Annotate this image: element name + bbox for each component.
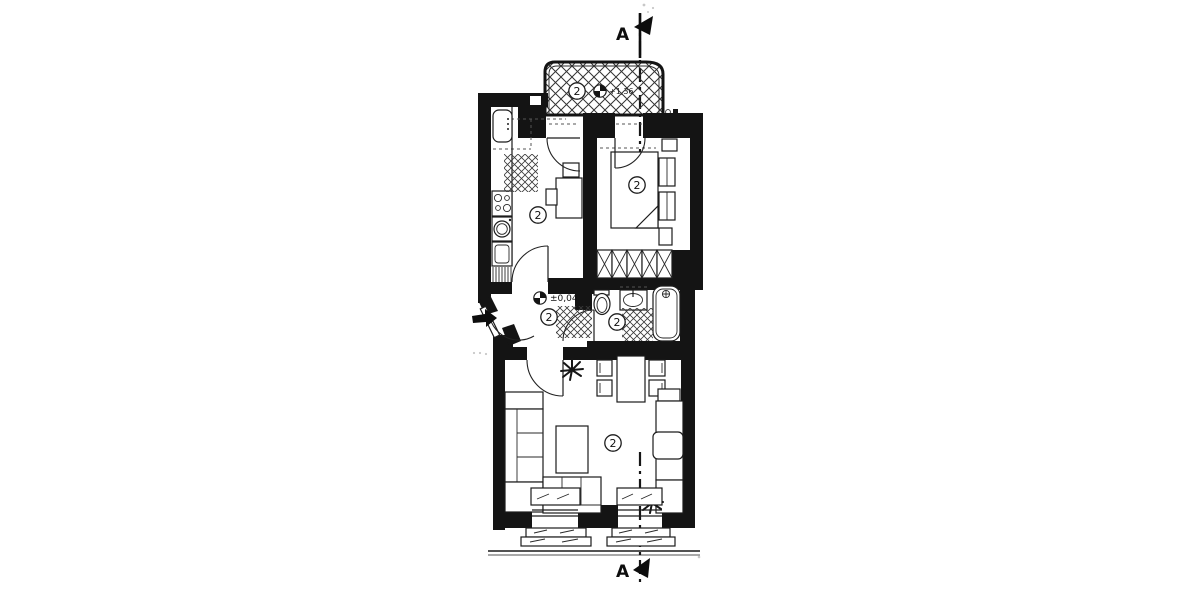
sink-icon [492, 217, 512, 241]
scanned-floor-plan-sheet: A A +1,36 2 [0, 0, 1200, 600]
radiator [531, 488, 580, 505]
living-room-door [527, 360, 563, 396]
kitchen-chair [546, 189, 557, 205]
room-number-balcony: 2 [574, 85, 581, 98]
room-number-hall: 2 [546, 311, 553, 324]
fridge-icon [493, 110, 512, 142]
washing-machine-icon [492, 242, 512, 266]
balcony-level-text: +1,36 [609, 87, 634, 96]
daybed-pillow [653, 432, 683, 459]
room-number-badge-hall: 2 [541, 309, 557, 325]
dining-chair [597, 360, 612, 376]
toilet-icon [594, 290, 610, 315]
stove-icon [492, 191, 512, 216]
room-number-badge-bedroom: 2 [629, 177, 645, 193]
room-number-living: 2 [610, 437, 617, 450]
bedroom: 2 [597, 124, 677, 278]
room-number-badge-balcony: 2 [569, 83, 585, 99]
kitchen-floor-hatch [504, 154, 538, 192]
room-number-badge-kitchen: 2 [530, 207, 546, 223]
section-flag-icon-bottom [633, 558, 650, 578]
room-number-badge-living: 2 [605, 435, 621, 451]
dining-table [597, 356, 665, 402]
coffee-table [556, 426, 588, 473]
dining-chair [597, 380, 612, 396]
section-letter-top: A [616, 25, 630, 45]
apartment-floor-plan: A A +1,36 2 [0, 0, 1200, 600]
entrance-door [472, 306, 534, 340]
hall-level-text: ±0,04 [550, 294, 578, 304]
washbasin-icon [620, 287, 647, 310]
kitchen-door [512, 246, 548, 282]
nightstand [662, 139, 677, 151]
section-flag-icon-top [634, 16, 653, 35]
ground-line [488, 551, 700, 555]
section-letter-bottom: A [616, 562, 630, 582]
bathtub-icon [653, 286, 680, 341]
bathroom: 2 [594, 286, 680, 341]
room-number-bathroom: 2 [614, 316, 621, 329]
hall-level-marker: ±0,04 [534, 292, 578, 304]
plant-icon [561, 359, 583, 380]
room-number-bedroom: 2 [634, 179, 641, 192]
bed [611, 152, 675, 245]
balcony: +1,36 2 [545, 62, 678, 115]
bathroom-floor-hatch [622, 308, 653, 341]
section-marker-top: A [616, 16, 653, 45]
wardrobe [597, 250, 672, 278]
balcony-level-marker: +1,36 [594, 85, 634, 97]
section-marker-bottom: A [616, 558, 650, 582]
radiator [617, 488, 662, 505]
wall-flue-slot [530, 96, 541, 105]
room-number-badge-bathroom: 2 [609, 314, 625, 330]
dining-chair [649, 360, 665, 376]
room-number-kitchen: 2 [535, 209, 542, 222]
radiator-grill-icon [493, 267, 511, 282]
